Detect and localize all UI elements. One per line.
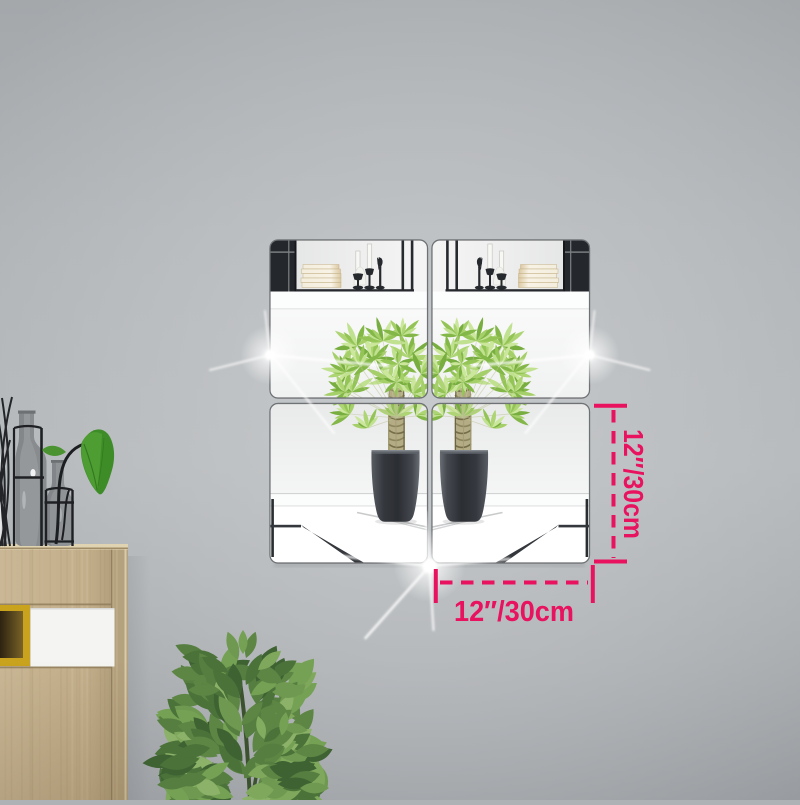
- svg-text:12″/30cm: 12″/30cm: [454, 596, 574, 628]
- svg-text:12″/30cm: 12″/30cm: [618, 429, 649, 539]
